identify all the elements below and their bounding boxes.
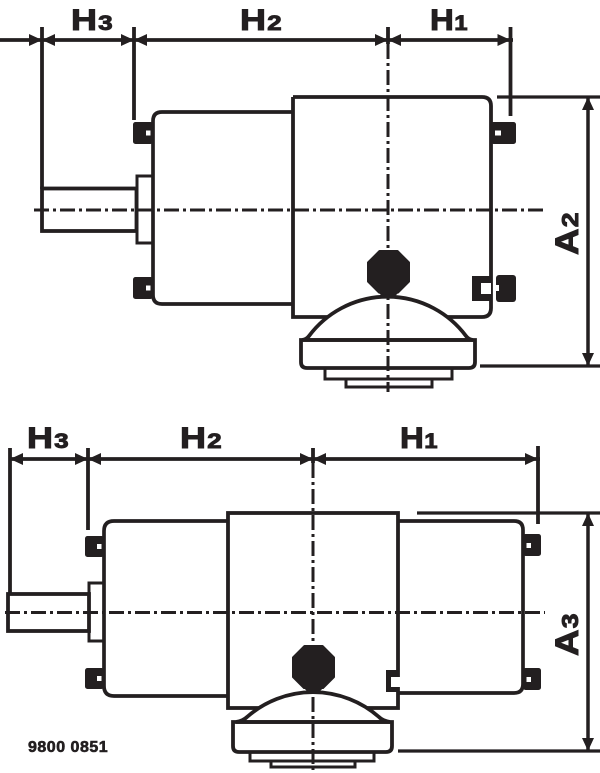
svg-text:H3: H3	[27, 422, 70, 455]
svg-text:H1: H1	[430, 2, 468, 36]
svg-text:H2: H2	[240, 4, 283, 37]
svg-text:H2: H2	[180, 422, 223, 455]
svg-text:H1: H1	[400, 420, 438, 454]
svg-text:9800 0851: 9800 0851	[28, 739, 108, 756]
svg-text:A2: A2	[550, 211, 585, 255]
svg-text:A3: A3	[550, 612, 585, 656]
svg-text:H3: H3	[71, 4, 114, 37]
